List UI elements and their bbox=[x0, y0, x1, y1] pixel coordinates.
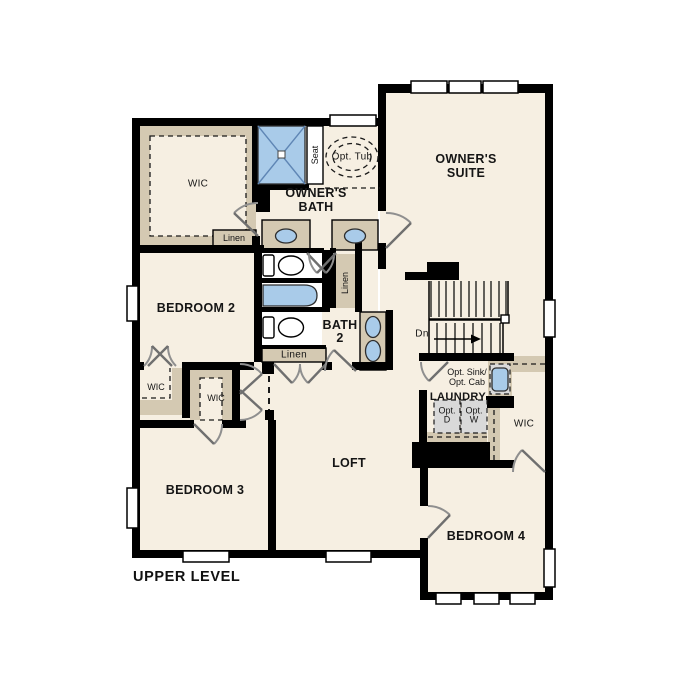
toilet-bowl bbox=[279, 318, 304, 337]
wall-segment bbox=[355, 242, 362, 312]
wall-segment bbox=[132, 245, 264, 253]
room-label-laundry: LAUNDRY bbox=[430, 391, 486, 403]
stair-newel-post bbox=[501, 315, 509, 323]
window bbox=[483, 81, 518, 93]
label-opt-dryer: Opt. D bbox=[438, 407, 455, 426]
window bbox=[183, 551, 229, 562]
window bbox=[474, 593, 499, 604]
label-opt-sink-cab: Opt. Sink/ Opt. Cab bbox=[447, 367, 487, 387]
wall-segment bbox=[232, 366, 240, 424]
label-shower-seat: Seat bbox=[310, 146, 320, 165]
window bbox=[127, 488, 138, 528]
window bbox=[411, 81, 447, 93]
wall-segment bbox=[378, 93, 386, 211]
wall-segment bbox=[386, 310, 393, 370]
room-label-owners-suite: OWNER'S SUITE bbox=[435, 152, 496, 180]
bathtub bbox=[263, 285, 317, 306]
window bbox=[544, 300, 555, 337]
room-label-bath2: BATH 2 bbox=[323, 319, 358, 345]
room-label-bedroom4: BEDROOM 4 bbox=[447, 529, 525, 543]
window bbox=[330, 115, 376, 126]
room-label-wic-bed4: WIC bbox=[514, 418, 534, 429]
window bbox=[326, 551, 371, 562]
window bbox=[449, 81, 481, 93]
wall-segment bbox=[486, 460, 514, 468]
wall-segment bbox=[486, 396, 514, 408]
room-label-loft: LOFT bbox=[332, 456, 366, 470]
sink bbox=[345, 229, 366, 243]
wall-segment bbox=[182, 362, 190, 418]
wall-segment bbox=[132, 420, 194, 428]
plan-title: UPPER LEVEL bbox=[133, 569, 240, 585]
label-linen-hall: Linen bbox=[281, 349, 307, 360]
sink bbox=[276, 229, 297, 243]
toilet-tank bbox=[263, 317, 274, 338]
wall-segment bbox=[412, 442, 490, 468]
room-label-wic-bed3: WIC bbox=[207, 393, 225, 403]
wall-segment bbox=[378, 243, 386, 269]
shower-drain bbox=[278, 151, 285, 158]
wall-segment bbox=[260, 278, 322, 283]
stair-landing-wall bbox=[427, 262, 459, 280]
room-label-owner-wic: WIC bbox=[188, 178, 208, 189]
floor-plan: WIC Linen Seat Opt. Tub OWNER'S BATH OWN… bbox=[0, 0, 687, 687]
wall-segment bbox=[268, 420, 276, 558]
wall-segment bbox=[256, 190, 270, 212]
wall-segment bbox=[260, 345, 326, 349]
label-opt-tub: Opt. Tub bbox=[332, 151, 373, 162]
wall-segment bbox=[352, 362, 392, 370]
wic3-shelf-left bbox=[190, 368, 200, 420]
laundry-sink bbox=[492, 368, 508, 391]
window bbox=[510, 593, 535, 604]
sink bbox=[366, 341, 381, 362]
sink bbox=[366, 317, 381, 338]
wall-segment bbox=[262, 362, 274, 374]
toilet-tank bbox=[263, 255, 274, 276]
room-label-wic-bed2: WIC bbox=[147, 382, 165, 392]
wall-segment bbox=[252, 248, 324, 253]
window bbox=[127, 286, 138, 321]
window bbox=[544, 549, 555, 587]
label-opt-washer: Opt. W bbox=[465, 407, 482, 426]
room-label-bedroom2: BEDROOM 2 bbox=[157, 301, 235, 315]
wall-segment bbox=[265, 410, 274, 420]
label-linen-vertical: Linen bbox=[340, 272, 350, 294]
toilet-bowl bbox=[279, 256, 304, 275]
room-label-bedroom3: BEDROOM 3 bbox=[166, 483, 244, 497]
label-stairs-down: Dn bbox=[415, 328, 428, 339]
wall-segment bbox=[419, 390, 427, 442]
wic2-shelf-side bbox=[172, 368, 182, 415]
wall-segment bbox=[260, 307, 322, 312]
floor-loft bbox=[258, 355, 428, 552]
wall-segment bbox=[420, 538, 428, 600]
floor-plan-page: WIC Linen Seat Opt. Tub OWNER'S BATH OWN… bbox=[0, 0, 687, 687]
wall-segment bbox=[132, 362, 144, 370]
wall-segment bbox=[186, 362, 254, 370]
wall-segment bbox=[132, 550, 428, 558]
wall-segment bbox=[420, 468, 428, 506]
room-label-owners-bath: OWNER'S BATH bbox=[285, 186, 346, 214]
window bbox=[436, 593, 461, 604]
label-linen-owner: Linen bbox=[223, 233, 245, 243]
